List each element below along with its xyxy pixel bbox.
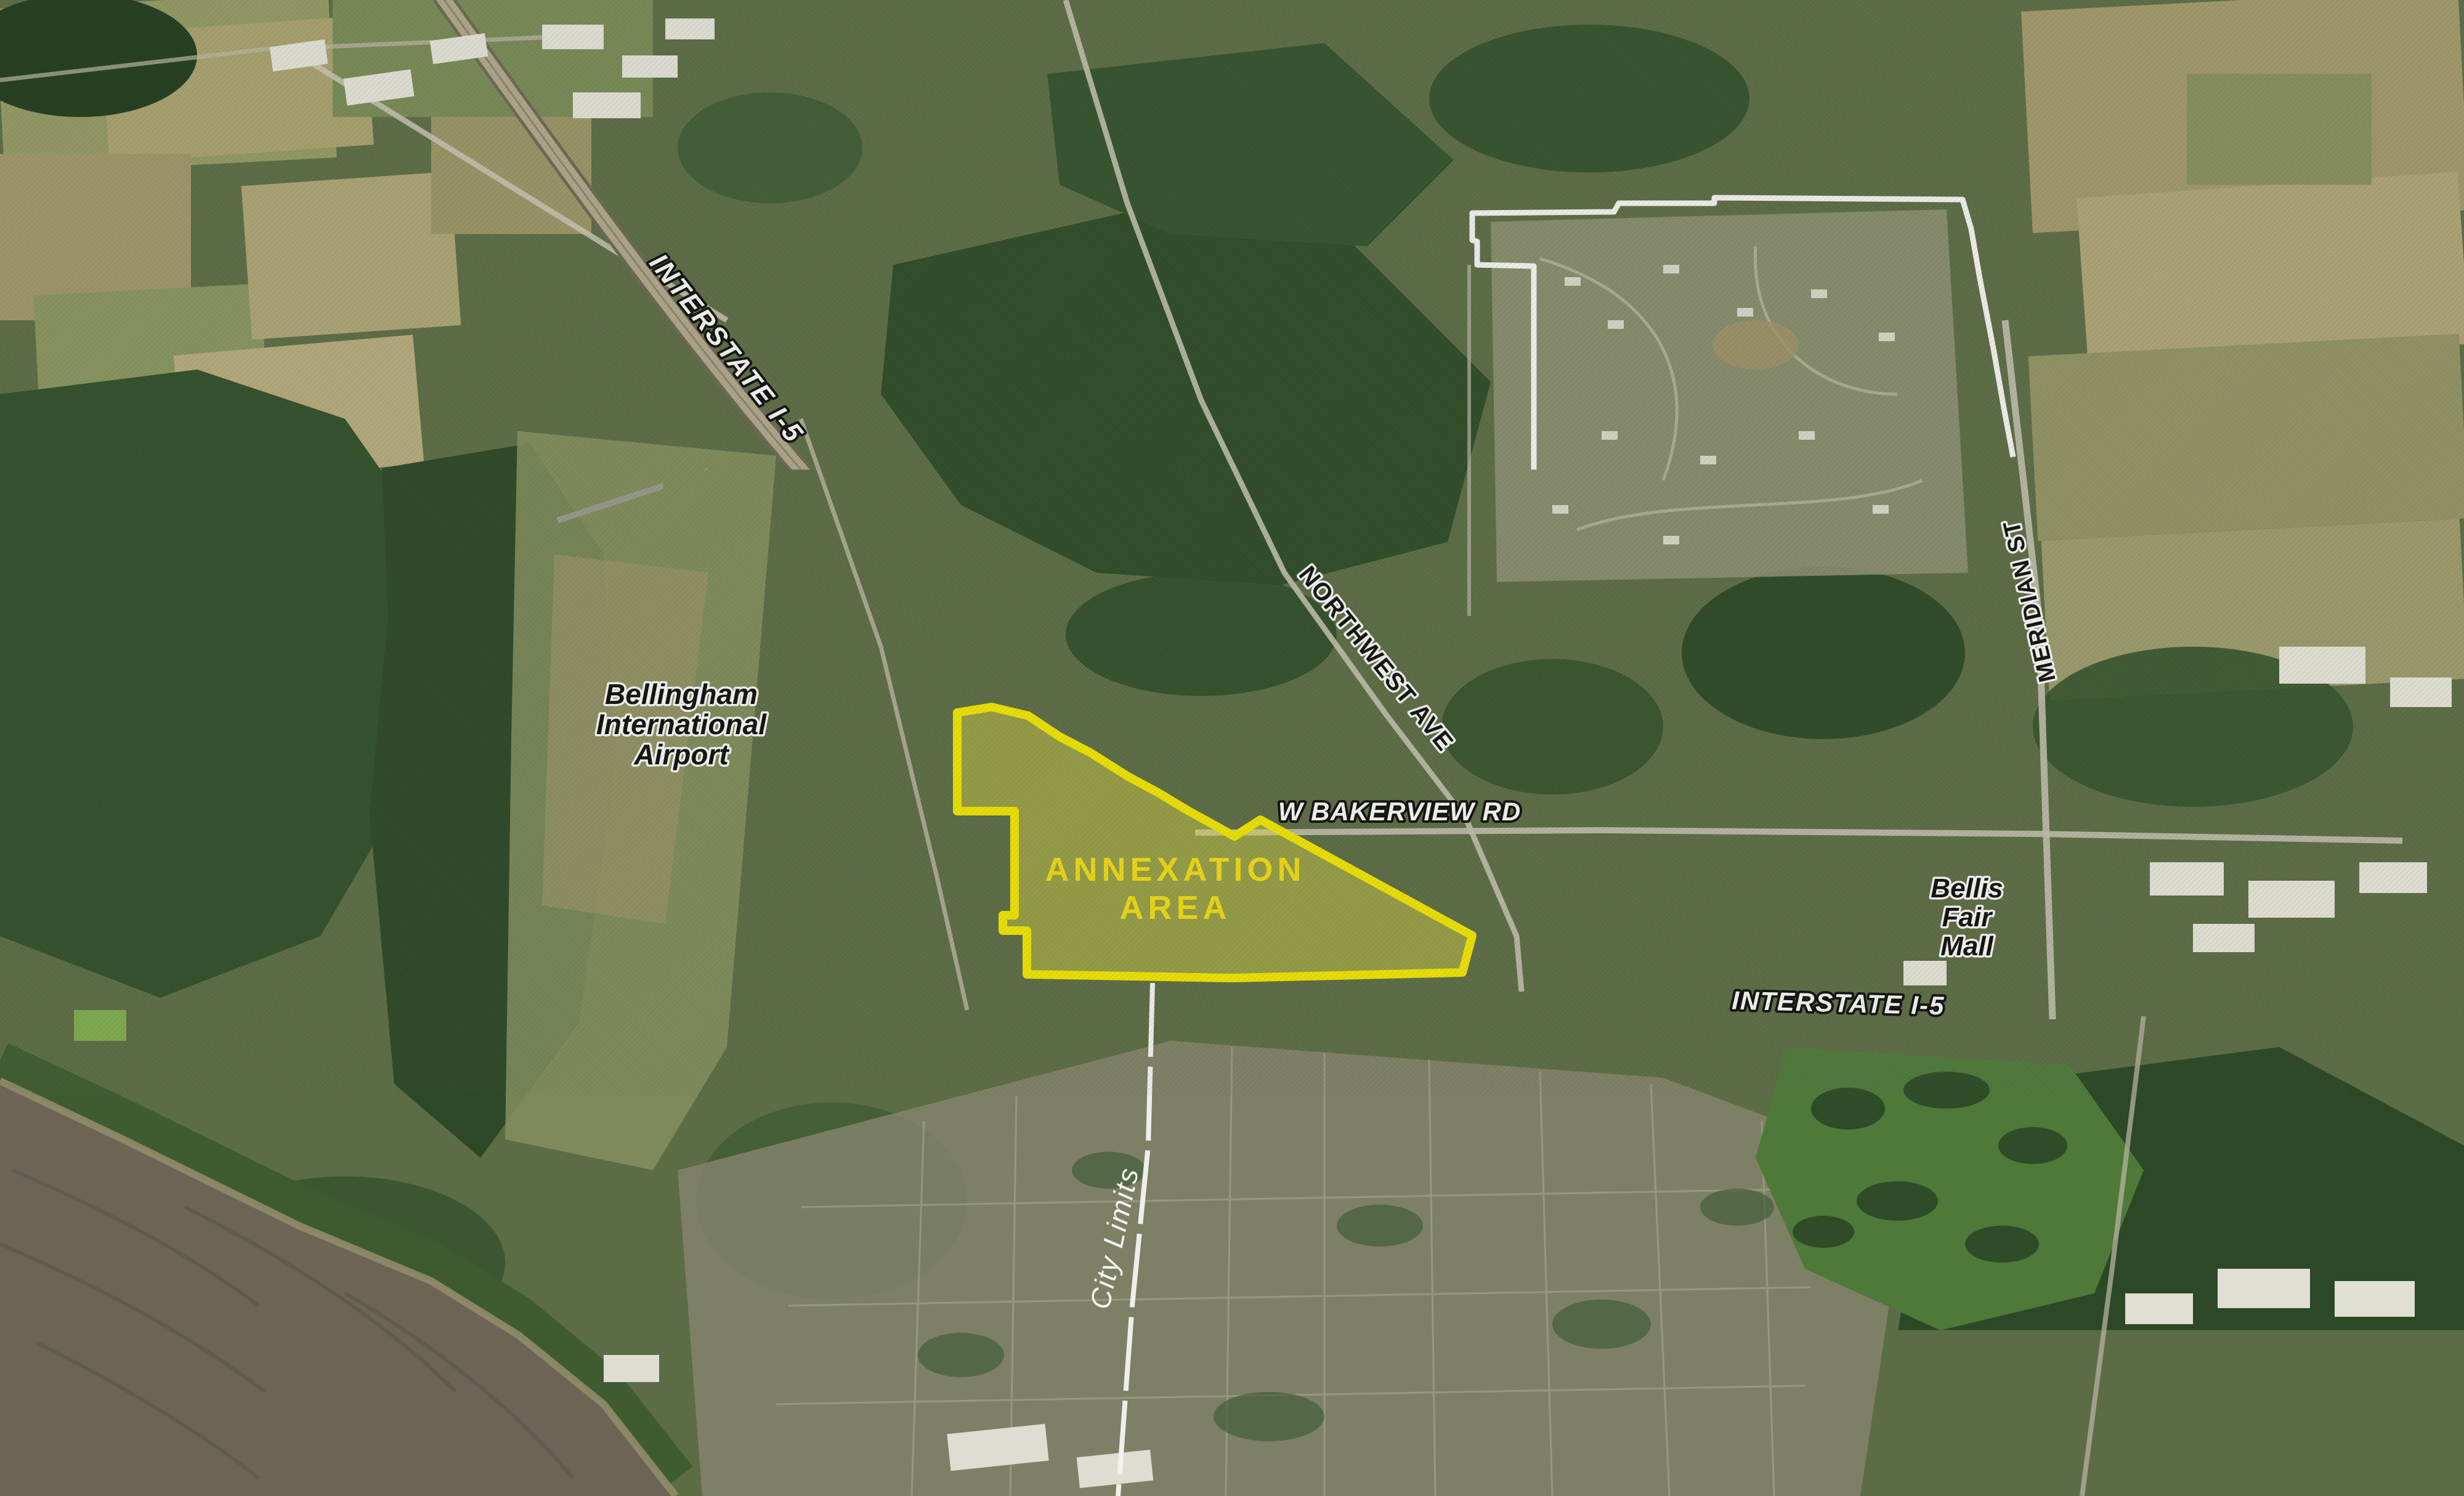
aerial-map: INTERSTATE I-5 City Limits NORTHWEST AVE… bbox=[0, 0, 2464, 1496]
color-cast-overlay bbox=[0, 0, 2464, 1496]
